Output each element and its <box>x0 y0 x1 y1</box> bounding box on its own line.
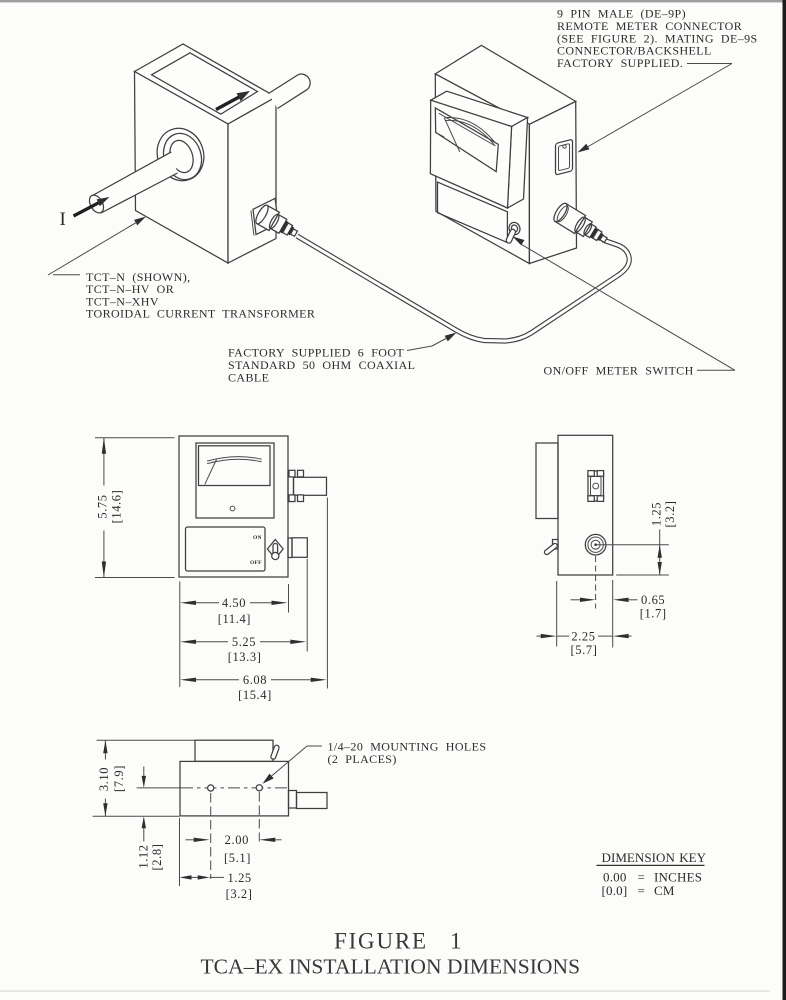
svg-text:TCA–EX INSTALLATION DIMENSIONS: TCA–EX INSTALLATION DIMENSIONS <box>201 955 581 979</box>
svg-text:[11.4]: [11.4] <box>218 612 251 626</box>
svg-text:(2 PLACES): (2 PLACES) <box>328 752 397 766</box>
svg-text:I: I <box>60 209 66 230</box>
svg-text:[13.3]: [13.3] <box>228 650 262 664</box>
svg-text:[2.8]: [2.8] <box>150 844 164 871</box>
svg-text:1.25: 1.25 <box>228 871 252 885</box>
svg-text:DIMENSION KEY: DIMENSION KEY <box>602 850 707 865</box>
svg-text:TOROIDAL CURRENT TRANSFORMER: TOROIDAL CURRENT TRANSFORMER <box>86 307 315 321</box>
svg-text:[15.4]: [15.4] <box>238 688 272 702</box>
svg-text:0.65: 0.65 <box>641 593 665 607</box>
svg-text:[3.2]: [3.2] <box>663 501 677 528</box>
svg-text:ON/OFF METER SWITCH: ON/OFF METER SWITCH <box>544 364 694 378</box>
svg-text:3.10: 3.10 <box>97 767 111 791</box>
svg-text:5.25: 5.25 <box>232 635 256 649</box>
svg-text:6.08: 6.08 <box>243 673 267 687</box>
svg-text:OFF: OFF <box>250 560 262 566</box>
svg-text:CABLE: CABLE <box>228 370 269 384</box>
svg-text:5.75: 5.75 <box>95 494 109 518</box>
svg-text:[1.7]: [1.7] <box>640 606 667 620</box>
svg-text:[5.1]: [5.1] <box>224 851 251 865</box>
svg-text:[14.6]: [14.6] <box>110 490 124 524</box>
svg-text:1.12: 1.12 <box>137 844 151 868</box>
svg-text:[5.7]: [5.7] <box>571 643 598 657</box>
svg-text:ON: ON <box>253 535 262 541</box>
svg-text:2.25: 2.25 <box>571 630 595 644</box>
svg-text:[7.9]: [7.9] <box>112 765 126 792</box>
svg-text:[3.2]: [3.2] <box>226 887 253 901</box>
svg-text:[0.0]=CM: [0.0]=CM <box>602 883 675 898</box>
svg-text:2.00: 2.00 <box>225 833 249 847</box>
svg-text:1.25: 1.25 <box>650 502 664 526</box>
svg-text:4.50: 4.50 <box>222 596 246 610</box>
svg-text:FACTORY SUPPLIED.: FACTORY SUPPLIED. <box>557 56 683 70</box>
svg-text:FIGURE1: FIGURE1 <box>334 929 462 954</box>
